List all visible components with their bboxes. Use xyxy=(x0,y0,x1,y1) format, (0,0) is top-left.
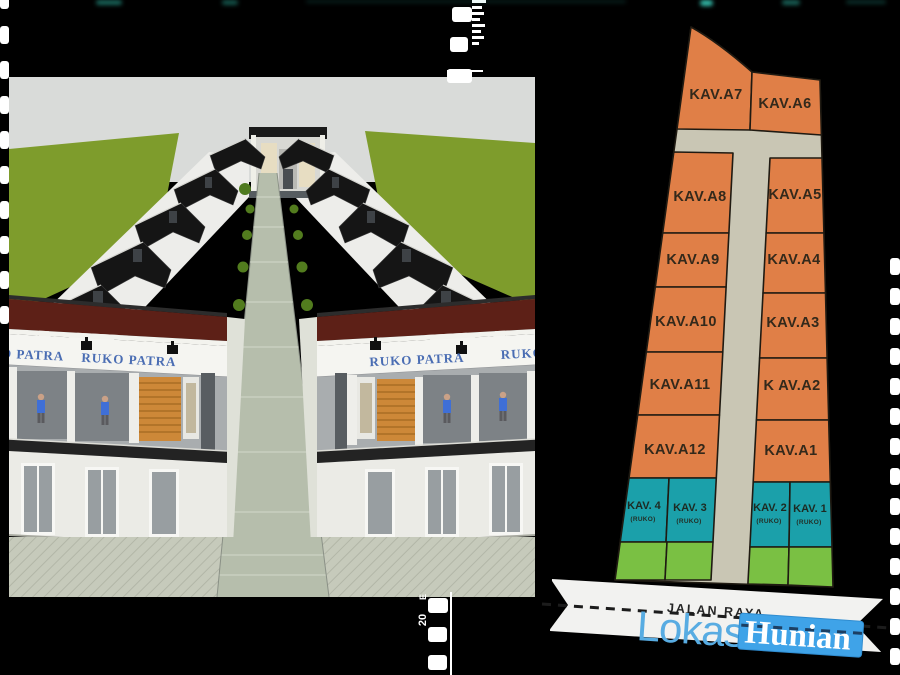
title-glow xyxy=(96,0,122,5)
film-barcode xyxy=(472,18,480,21)
ruko-right: RUKO PATRA RUKO PATRA xyxy=(299,295,535,547)
sprocket-hole xyxy=(0,26,9,44)
sprocket-hole xyxy=(890,408,900,425)
film-barcode xyxy=(472,12,484,15)
film-edge-code: E xyxy=(418,586,428,608)
film-edge-mark xyxy=(452,7,472,22)
sprocket-hole xyxy=(890,378,900,395)
sprocket-hole xyxy=(890,528,900,545)
plot-label-a4: KAV.A4 xyxy=(767,252,820,268)
poster: RUKO PATRA RUKO PATRA xyxy=(0,0,900,675)
plot-label-a7: KAV.A7 xyxy=(689,87,742,103)
film-edge-line xyxy=(450,592,452,675)
title-glow xyxy=(306,0,626,3)
ruko-sub-2: (RUKO) xyxy=(756,518,781,525)
plot-label-a5: KAV.A5 xyxy=(768,187,821,203)
sprocket-hole xyxy=(890,468,900,485)
plot-label-a8: KAV.A8 xyxy=(673,189,726,205)
plot-label-a2: K AV.A2 xyxy=(763,378,820,394)
ruko-label-3: KAV. 3 xyxy=(673,502,707,514)
ruko-left: RUKO PATRA RUKO PATRA xyxy=(9,295,245,547)
plot-green-2 xyxy=(665,542,713,580)
sprocket-hole xyxy=(890,258,900,275)
film-barcode xyxy=(472,30,481,33)
plot-green-3 xyxy=(748,547,789,585)
sprocket-hole xyxy=(890,348,900,365)
sprocket-hole xyxy=(890,618,900,635)
plot-green-1 xyxy=(615,542,667,580)
road-bottom xyxy=(217,537,329,597)
film-edge-mark xyxy=(428,655,447,670)
ruko-sub-4: (RUKO) xyxy=(630,516,655,523)
sprocket-hole xyxy=(890,318,900,335)
sprocket-hole xyxy=(890,558,900,575)
ruko-label-2: KAV. 2 xyxy=(753,502,787,514)
film-barcode xyxy=(472,42,479,45)
sprocket-hole xyxy=(0,236,9,254)
film-frame-number: 20 xyxy=(417,609,429,631)
sprocket-hole xyxy=(890,498,900,515)
film-barcode xyxy=(472,36,484,39)
plot-label-a1: KAV.A1 xyxy=(764,443,817,459)
sprocket-hole xyxy=(0,201,9,219)
title-glow xyxy=(782,0,800,5)
housing-render-photo: RUKO PATRA RUKO PATRA xyxy=(9,77,535,597)
sprocket-hole xyxy=(890,588,900,605)
plot-label-a12: KAV.A12 xyxy=(644,442,706,458)
title-glow xyxy=(846,0,886,4)
sprocket-hole xyxy=(0,96,9,114)
film-barcode xyxy=(472,24,485,27)
site-plan: KAV.A7 KAV.A6 KAV.A8 KAV.A9 KAV.A10 KAV.… xyxy=(540,0,900,675)
ruko-label-1: KAV. 1 xyxy=(793,503,827,515)
title-glow xyxy=(700,0,713,6)
sprocket-hole xyxy=(0,166,9,184)
plot-label-a9: KAV.A9 xyxy=(666,252,719,268)
brand-hunian: Hunian xyxy=(744,614,853,657)
sprocket-hole xyxy=(0,306,9,324)
film-edge-mark xyxy=(428,598,448,613)
plot-ruko-2 xyxy=(750,482,790,547)
plot-label-a3: KAV.A3 xyxy=(766,315,819,331)
brand-lokasi: Lokasi xyxy=(635,602,753,657)
sprocket-hole xyxy=(890,288,900,305)
plot-label-a6: KAV.A6 xyxy=(758,96,811,112)
ruko-sub-1: (RUKO) xyxy=(796,519,821,526)
plot-label-a11: KAV.A11 xyxy=(650,377,711,393)
sprocket-hole xyxy=(0,271,9,289)
film-edge-mark xyxy=(428,627,447,642)
ruko-sub-3: (RUKO) xyxy=(676,518,701,525)
sprocket-hole xyxy=(0,61,9,79)
sprocket-hole xyxy=(0,131,9,149)
film-barcode xyxy=(472,6,482,9)
sprocket-hole xyxy=(890,438,900,455)
sprocket-hole xyxy=(0,0,9,9)
plot-green-4 xyxy=(788,547,833,587)
film-edge-mark xyxy=(450,37,468,52)
plot-a7 xyxy=(677,27,752,130)
ruko-label-4: KAV. 4 xyxy=(627,500,662,512)
film-edge-line xyxy=(447,70,483,72)
plot-label-a10: KAV.A10 xyxy=(655,314,717,330)
sprocket-hole xyxy=(890,648,900,665)
title-glow xyxy=(222,0,238,5)
